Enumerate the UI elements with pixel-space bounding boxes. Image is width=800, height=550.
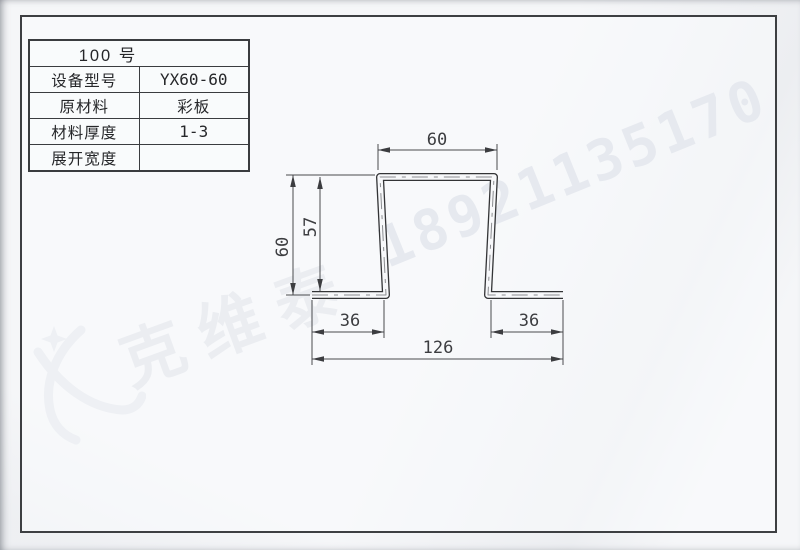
profile-centerline [312, 177, 563, 295]
profile-outline [312, 177, 563, 295]
scanned-page: 克维泰 18921135170 100 号 设备型号 YX60-60 原材料 彩… [0, 0, 800, 550]
dim-left-flange: 36 [340, 311, 360, 331]
profile-drawing: 60 60 57 36 36 126 [0, 0, 800, 550]
dim-web-height: 57 [301, 217, 321, 237]
dim-top-width: 60 [427, 130, 447, 150]
dim-overall-width: 126 [423, 338, 454, 358]
dim-right-flange: 36 [519, 311, 539, 331]
dim-overall-height: 60 [273, 237, 293, 257]
